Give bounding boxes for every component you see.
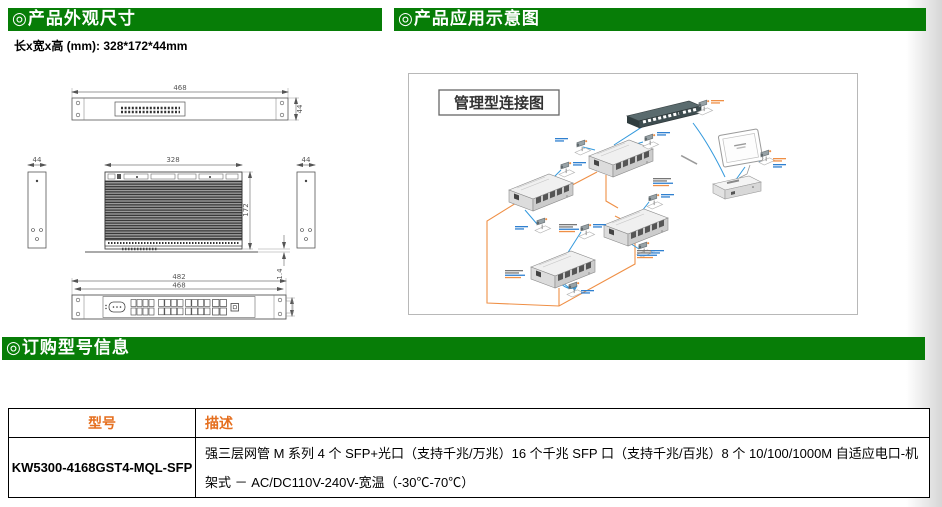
diagram-title: 管理型连接图: [454, 94, 544, 112]
media-converter-illustration: [509, 174, 573, 211]
dim-side-left: 44: [33, 156, 42, 164]
tiny-label: [555, 138, 568, 142]
nvr-illustration: [713, 176, 761, 199]
datasheet-page: ◎产品外观尺寸 ◎产品应用示意图 ◎订购型号信息 长x宽x高 (mm): 328…: [0, 0, 942, 507]
section-header-ordering: ◎订购型号信息: [2, 337, 925, 360]
tiny-label: [711, 100, 724, 104]
media-converter-illustration: [589, 140, 653, 177]
application-diagram: 管理型连接图: [408, 73, 858, 315]
dim-body-depth: 172: [242, 203, 250, 216]
tiny-label: [681, 155, 698, 165]
camera-icon: [575, 140, 591, 155]
column-header-description: 描述: [196, 409, 930, 438]
media-converter-illustration: [604, 209, 668, 246]
tiny-label: [515, 226, 528, 230]
camera-icon: [643, 134, 659, 149]
ordering-table-header-row: 型号 描述: [9, 409, 930, 438]
section-title-ordering: ◎订购型号信息: [6, 338, 130, 358]
tiny-label: [581, 290, 594, 294]
tiny-label: [653, 178, 673, 186]
drawing-plan-view: 328 172 1.4: [85, 156, 290, 280]
section-title-application: ◎产品应用示意图: [398, 9, 540, 29]
dim-top-width: 468: [173, 84, 186, 92]
drawing-side-view-left: 44: [28, 156, 46, 248]
dim-body-width: 328: [166, 156, 179, 164]
tiny-label: [559, 224, 579, 232]
ordering-table: 型号 描述 KW5300-4168GST4-MQL-SFP 强三层网管 M 系列…: [8, 408, 930, 498]
model-cell: KW5300-4168GST4-MQL-SFP: [9, 438, 196, 498]
tiny-label: [773, 164, 786, 168]
dim-front-inner: 468: [172, 282, 185, 290]
tiny-label: [573, 162, 586, 166]
dim-flange-thickness: 1.4: [276, 268, 284, 280]
dim-front-outer: 482: [172, 273, 185, 281]
application-diagram-canvas: 管理型连接图: [409, 74, 857, 314]
dimensions-note: 长x宽x高 (mm): 328*172*44mm: [14, 37, 187, 54]
section-header-dimensions: ◎产品外观尺寸: [8, 8, 382, 31]
camera-icon: [647, 194, 663, 209]
description-cell: 强三层网管 M 系列 4 个 SFP+光口（支持千兆/万兆）16 个千兆 SFP…: [196, 438, 930, 498]
monitor-illustration: [718, 129, 763, 178]
camera-icon: [535, 218, 551, 233]
rack-switch-illustration: [627, 101, 701, 128]
drawing-side-view-right: 44: [297, 156, 315, 248]
dim-side-right: 44: [302, 156, 311, 164]
drawing-front-panel-view: 482 468: [72, 273, 295, 319]
section-title-dimensions: ◎产品外观尺寸: [12, 9, 136, 29]
tiny-label: [661, 194, 674, 198]
technical-drawing: 468 44 44 328: [0, 82, 340, 334]
tiny-label: [657, 132, 670, 136]
media-converter-illustration: [531, 251, 595, 288]
tiny-label: [505, 270, 525, 278]
tiny-label: [773, 158, 786, 162]
drawing-rear-panel-view: 468 44: [72, 84, 304, 120]
camera-icon: [559, 162, 575, 177]
column-header-model: 型号: [9, 409, 196, 438]
dim-top-height: 44: [296, 104, 304, 113]
section-header-application: ◎产品应用示意图: [394, 8, 926, 31]
table-row: KW5300-4168GST4-MQL-SFP 强三层网管 M 系列 4 个 S…: [9, 438, 930, 498]
tiny-label: [651, 250, 664, 254]
camera-icon: [579, 224, 595, 239]
